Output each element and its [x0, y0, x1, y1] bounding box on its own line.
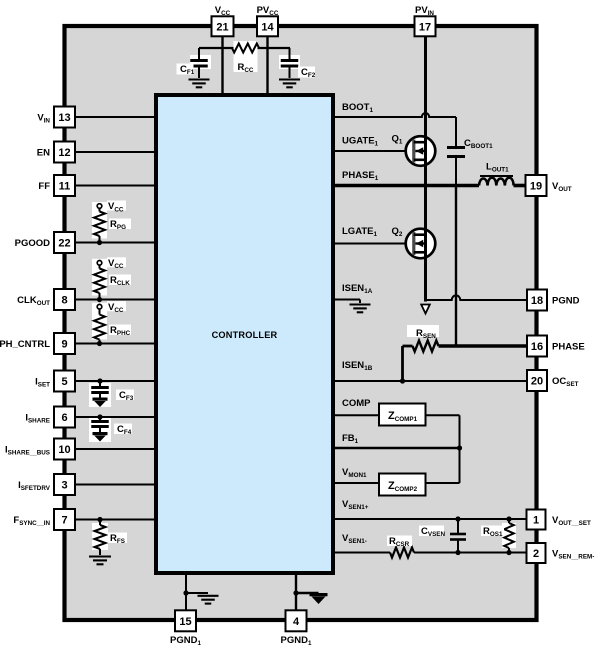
- svg-text:VSEN__REM-: VSEN__REM-: [552, 549, 594, 561]
- svg-text:CONTROLLER: CONTROLLER: [212, 330, 278, 340]
- svg-text:ISHARE__BUS: ISHARE__BUS: [5, 444, 50, 456]
- svg-text:4: 4: [293, 616, 300, 628]
- svg-text:14: 14: [261, 21, 274, 33]
- svg-text:20: 20: [531, 375, 543, 387]
- svg-text:9: 9: [61, 338, 67, 350]
- svg-text:LGATE1: LGATE1: [342, 226, 378, 238]
- svg-text:21: 21: [216, 21, 228, 33]
- svg-text:11: 11: [59, 180, 71, 192]
- svg-text:PHASE: PHASE: [552, 342, 585, 353]
- svg-text:FF: FF: [38, 181, 50, 192]
- svg-text:PGND1: PGND1: [170, 635, 201, 647]
- svg-text:VCC: VCC: [215, 5, 231, 17]
- svg-text:EN: EN: [37, 147, 50, 158]
- svg-text:22: 22: [58, 237, 70, 249]
- svg-text:PGND1: PGND1: [281, 635, 312, 647]
- svg-text:7: 7: [61, 514, 67, 526]
- svg-text:VIN: VIN: [37, 112, 50, 124]
- svg-text:PVCC: PVCC: [257, 5, 279, 17]
- svg-text:VOUT: VOUT: [552, 181, 572, 193]
- svg-text:19: 19: [530, 180, 542, 192]
- svg-text:18: 18: [531, 295, 543, 307]
- svg-text:ISFETDRV: ISFETDRV: [18, 480, 51, 492]
- svg-text:PGOOD: PGOOD: [15, 238, 51, 249]
- svg-text:ISET: ISET: [35, 376, 50, 388]
- svg-text:15: 15: [179, 616, 191, 628]
- svg-text:3: 3: [61, 479, 67, 491]
- svg-text:10: 10: [58, 444, 70, 456]
- svg-text:PHASE1: PHASE1: [342, 170, 379, 182]
- svg-text:16: 16: [531, 341, 543, 353]
- svg-text:PGND: PGND: [552, 296, 580, 307]
- svg-text:6: 6: [61, 412, 67, 424]
- svg-text:ISHARE: ISHARE: [25, 412, 50, 424]
- svg-text:VOUT__SET: VOUT__SET: [552, 515, 591, 527]
- svg-text:12: 12: [58, 147, 70, 159]
- svg-text:PH_CNTRL: PH_CNTRL: [0, 339, 50, 350]
- svg-text:UGATE1: UGATE1: [342, 136, 379, 148]
- svg-text:5: 5: [61, 376, 67, 388]
- svg-text:PVIN: PVIN: [415, 5, 434, 17]
- svg-text:BOOT1: BOOT1: [342, 102, 373, 114]
- svg-text:2: 2: [533, 548, 539, 560]
- svg-text:COMP: COMP: [342, 398, 371, 409]
- svg-text:FSYNC__IN: FSYNC__IN: [13, 515, 50, 527]
- svg-text:17: 17: [419, 21, 431, 33]
- svg-text:1: 1: [533, 514, 539, 526]
- svg-text:13: 13: [58, 112, 70, 124]
- svg-text:OCSET: OCSET: [552, 376, 579, 388]
- svg-text:CLKOUT: CLKOUT: [17, 295, 50, 307]
- svg-text:8: 8: [61, 294, 67, 306]
